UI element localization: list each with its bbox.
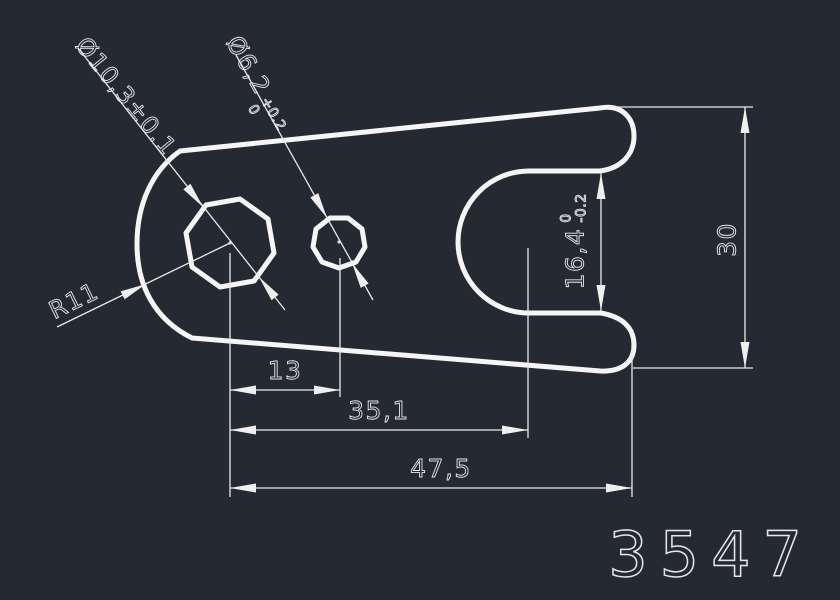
part-number: 3547 [608,524,814,586]
leader-arrow-hole-small-top [310,193,331,220]
label-dimension-16-4: 16,4 0 -0.2 [560,174,591,308]
label-dimension-47-5: 47,5 [356,456,526,481]
tolerance-upper: 0 [560,193,575,222]
cad-drawing-canvas[interactable]: Ø10,3±0.1 Ø6,2 +0.2 0 R11 13 35,1 47,5 3… [0,0,840,600]
label-slot-width-value: 16,4 [563,228,588,290]
label-dimension-30: 30 [715,210,740,270]
label-slot-width-tolerance: 0 -0.2 [560,193,591,222]
label-dimension-35-1: 35,1 [304,398,454,423]
label-dimension-13: 13 [235,358,335,383]
tolerance-lower: -0.2 [575,193,590,222]
